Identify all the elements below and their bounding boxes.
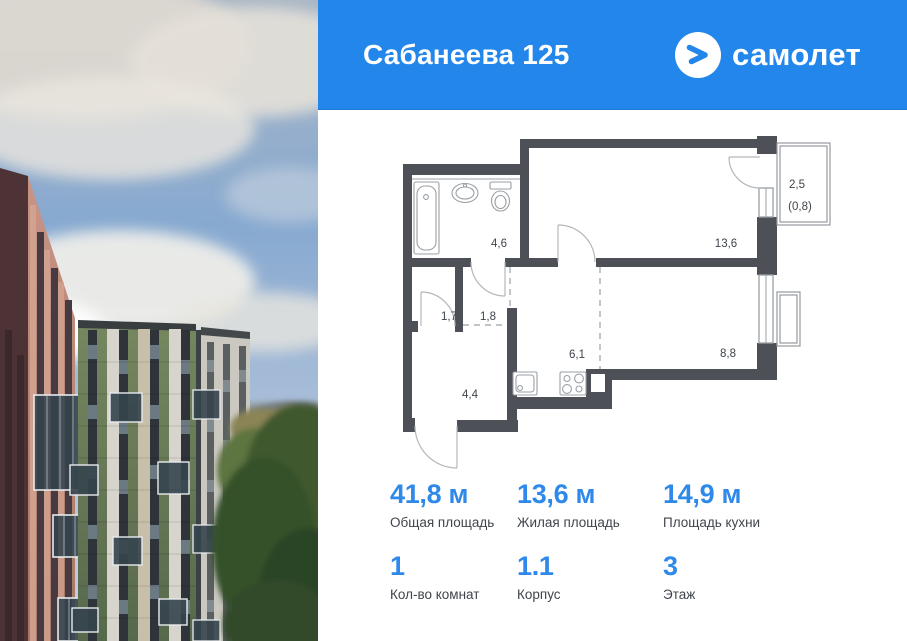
floor-plan: 4,6 13,6 1,7 1,8 6,1 8,8 4,4 2,5 (0,8) <box>398 128 840 478</box>
samolet-logo-icon <box>675 32 721 78</box>
room-label-kitchen: 6,1 <box>569 349 585 361</box>
stat-building: 1.1 Корпус <box>517 552 677 602</box>
stat-living-area-label: Жилая площадь <box>517 515 677 530</box>
header: Сабанеева 125 самолет <box>318 0 907 110</box>
room-label-hallway: 1,8 <box>480 311 496 323</box>
stat-floor-value: 3 <box>663 552 823 580</box>
stat-living-area-value: 13,6 м <box>517 480 677 508</box>
room-label-balcony-reduced: (0,8) <box>788 201 812 213</box>
stat-kitchen-area-value: 14,9 м <box>663 480 823 508</box>
room-label-balcony: 2,5 <box>789 179 805 191</box>
stat-building-label: Корпус <box>517 587 677 602</box>
room-label-hallway-small: 1,7 <box>441 311 457 323</box>
room-label-living-room: 13,6 <box>715 238 737 250</box>
building-photo <box>0 0 318 641</box>
stat-floor-label: Этаж <box>663 587 823 602</box>
stat-living-area: 13,6 м Жилая площадь <box>517 480 677 530</box>
stat-kitchen-area: 14,9 м Площадь кухни <box>663 480 823 530</box>
listing-content: Сабанеева 125 самолет <box>318 0 907 641</box>
brand-name: самолет <box>732 39 861 70</box>
brand-logo: самолет <box>675 32 861 78</box>
stat-kitchen-area-label: Площадь кухни <box>663 515 823 530</box>
room-label-entry: 4,4 <box>462 389 479 401</box>
room-label-room: 8,8 <box>720 348 736 360</box>
listing-card: Сабанеева 125 самолет <box>0 0 907 641</box>
stat-building-value: 1.1 <box>517 552 677 580</box>
page-title: Сабанеева 125 <box>363 39 570 71</box>
building-photo-art <box>0 0 318 641</box>
stat-floor: 3 Этаж <box>663 552 823 602</box>
room-label-bathroom: 4,6 <box>491 238 507 250</box>
